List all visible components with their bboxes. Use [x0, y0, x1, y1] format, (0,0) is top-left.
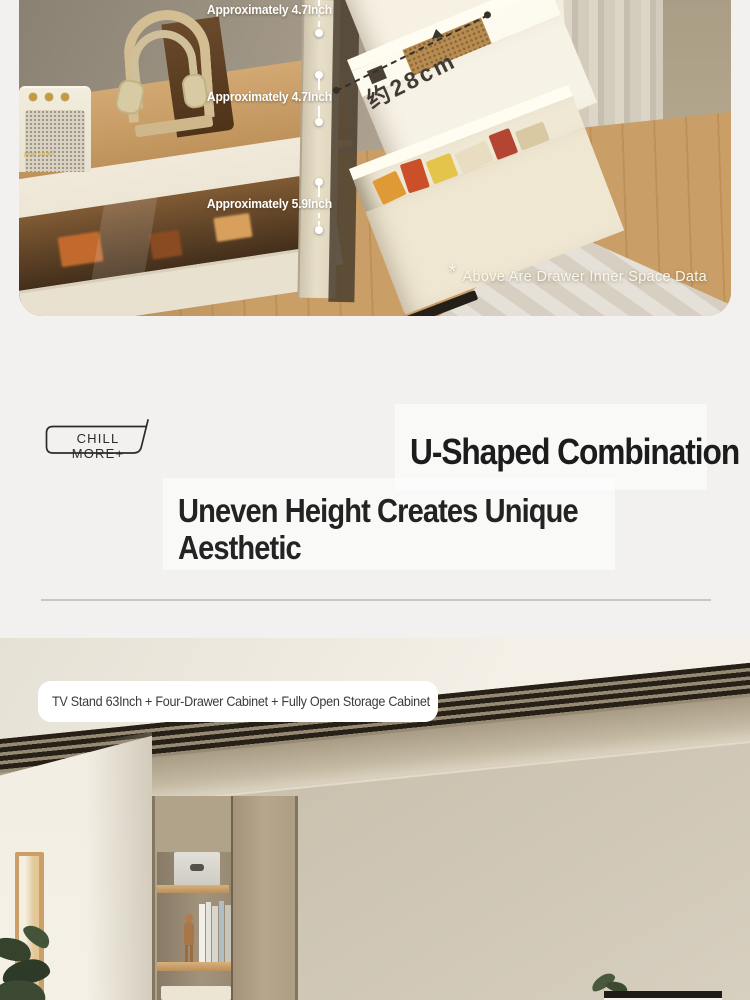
measure-dashed-line — [318, 106, 320, 118]
measure-dot — [315, 118, 323, 126]
measure-dot — [315, 29, 323, 37]
measure-dot — [315, 178, 323, 186]
measure-dot — [315, 226, 323, 234]
cabinet-lower-drawer — [161, 986, 231, 1000]
section-divider — [41, 599, 711, 601]
storage-box — [174, 852, 220, 886]
chill-more-badge: CHILL MORE+ — [40, 418, 164, 460]
picture-frame — [604, 991, 722, 1000]
footnote-text: Above Are Drawer Inner Space Data — [463, 269, 707, 285]
wood-shelf — [157, 962, 231, 971]
cabinet-door — [231, 796, 297, 1000]
combination-caption-pill: TV Stand 63Inch + Four-Drawer Cabinet + … — [38, 681, 438, 722]
cabinet-open-shelves — [157, 852, 231, 1000]
glass-item — [149, 230, 183, 260]
badge-label: CHILL MORE+ — [52, 431, 144, 461]
subtitle-line-1: Uneven Height Creates Unique — [178, 492, 578, 529]
caption-text: TV Stand 63Inch + Four-Drawer Cabinet + … — [52, 681, 430, 722]
speaker-knob — [29, 93, 37, 101]
book-spine — [199, 904, 205, 962]
section-subtitle: Uneven Height Creates Unique Aesthetic — [178, 492, 578, 566]
measurement-label-3: Approximately 5.9Inch — [174, 196, 332, 211]
book-spine — [219, 901, 224, 962]
measurement-label-1: Approximately 4.7Inch — [174, 2, 332, 17]
section-title: U-Shaped Combination — [410, 431, 739, 473]
product-detail-page: Marshall — [0, 0, 750, 1000]
speaker-grille — [25, 110, 85, 172]
mannequin — [185, 914, 193, 922]
book-spine — [212, 906, 218, 962]
speaker-knob — [45, 93, 53, 101]
wall-corner-shade — [86, 732, 152, 1000]
mannequin — [184, 922, 194, 946]
glass-item — [214, 212, 253, 241]
speaker: Marshall — [19, 86, 91, 172]
measure-dot — [315, 71, 323, 79]
measure-dashed-line — [318, 213, 320, 226]
measurement-label-2: Approximately 4.7Inch — [174, 89, 332, 104]
subtitle-line-2: Aesthetic — [178, 529, 578, 566]
tall-storage-cabinet — [152, 796, 298, 1000]
living-room-photo: TV Stand 63Inch + Four-Drawer Cabinet + … — [0, 638, 750, 1000]
footnote-asterisk: * — [448, 261, 456, 283]
drawer-data-footnote: *Above Are Drawer Inner Space Data — [448, 264, 707, 287]
ruler-icon — [430, 28, 444, 39]
mannequin — [185, 945, 193, 962]
book-spine — [206, 902, 211, 962]
books — [199, 900, 229, 962]
speaker-knob — [61, 93, 69, 101]
drawer-dimensions-photo: Marshall — [19, 0, 731, 316]
cabinet-dark-opening — [328, 0, 359, 302]
wood-shelf — [157, 885, 229, 893]
